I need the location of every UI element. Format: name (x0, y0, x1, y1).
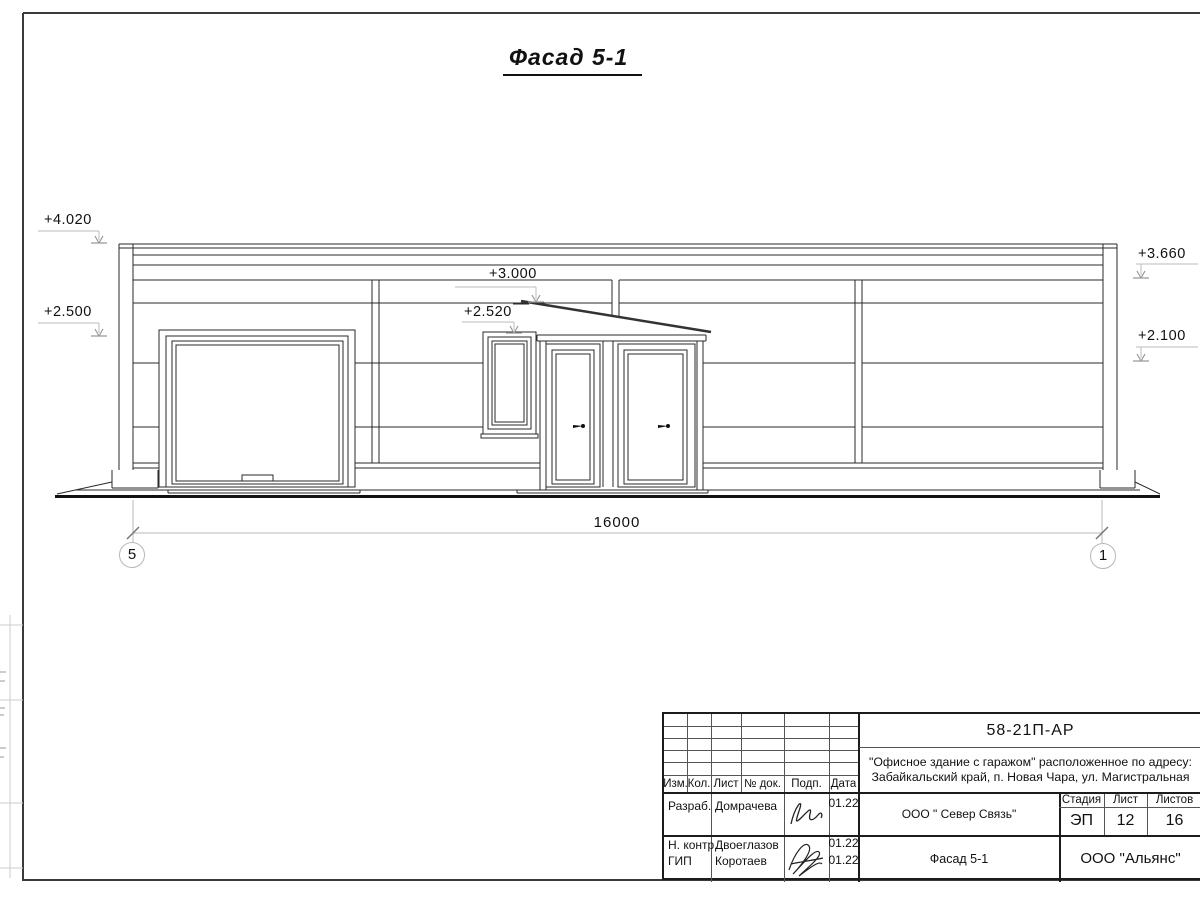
canopy-fascia (537, 335, 706, 341)
title-block: Изм. Кол. Лист № док. Подп. Дата Разраб.… (662, 712, 1200, 880)
tb-project-line1: "Офисное здание с гаражом" расположенное… (869, 755, 1192, 770)
window (481, 332, 538, 438)
tb-row-line (664, 762, 858, 763)
tb-stage-value: ЭП (1059, 807, 1104, 835)
tb-org: ООО " Север Связь" (859, 792, 1059, 835)
tb-role-ncontrol: Н. контр. (668, 838, 718, 852)
door-left-handle (573, 424, 585, 428)
garage-door (159, 330, 355, 487)
tb-stage-label: Стадия (1059, 792, 1104, 807)
tb-col-doc: № док. (741, 775, 784, 792)
tb-col-list: Лист (711, 775, 741, 792)
tb-project-line2: Забайкальский край, п. Новая Чара, ул. М… (871, 770, 1189, 785)
tb-sheet-title: Фасад 5-1 (859, 835, 1059, 882)
garage-door-handle (242, 475, 273, 481)
tb-row-line (664, 726, 858, 727)
elevation-mark-3660: +3.660 (1138, 246, 1186, 262)
tb-date-ncontrol: 01.22 (829, 835, 858, 851)
plinth-and-ramps (57, 470, 1160, 494)
tb-doc-number: 58-21П-АР (859, 714, 1200, 747)
drawing-sheet: { "sheet": { "title": "Фасад 5-1" }, "ma… (0, 0, 1200, 900)
tb-col-data: Дата (829, 775, 858, 792)
tb-sheets-label: Листов (1147, 792, 1200, 807)
tb-name-gip: Коротаев (715, 854, 767, 868)
tb-col-kol: Кол. (687, 775, 711, 792)
tb-project-name: "Офисное здание с гаражом" расположенное… (859, 747, 1200, 792)
overall-dimension: 16000 (594, 514, 641, 531)
tb-company: ООО "Альянс" (1059, 835, 1200, 882)
door-left (546, 344, 600, 487)
axis-number-left: 5 (119, 546, 145, 563)
tb-role-developer: Разраб. (668, 799, 711, 813)
tb-name-ncontrol: Двоеглазов (715, 838, 779, 852)
tb-row-line (664, 750, 858, 751)
elevation-mark-3000: +3.000 (489, 266, 537, 282)
drawing-title: Фасад 5-1 (503, 44, 642, 76)
elevation-mark-2520: +2.520 (464, 304, 512, 320)
tb-date-gip: 01.22 (829, 852, 858, 868)
dimension-lines (120, 500, 1116, 569)
tb-date-developer: 01.22 (829, 794, 858, 812)
tb-sheet-number: 12 (1104, 807, 1147, 835)
tb-row-line (664, 738, 858, 739)
tb-col-podp: Подп. (784, 775, 829, 792)
tb-role-gip: ГИП (668, 854, 692, 868)
door-right (618, 344, 695, 487)
signature-developer (785, 794, 828, 834)
tb-sheet-label: Лист (1104, 792, 1147, 807)
tb-col-izm: Изм. (664, 775, 687, 792)
portal-posts (540, 341, 703, 490)
signature-gip (785, 836, 828, 880)
window-sill (481, 434, 538, 438)
canopy-slope (521, 301, 711, 332)
door-right-handle (658, 424, 670, 428)
elevation-mark-4020: +4.020 (44, 212, 92, 228)
elevation-mark-2100: +2.100 (1138, 328, 1186, 344)
elevation-mark-2500: +2.500 (44, 304, 92, 320)
tb-sheets-total: 16 (1147, 807, 1200, 835)
tb-name-developer: Домрачева (715, 799, 777, 813)
margin-stamp-fragment (0, 615, 23, 878)
axis-number-right: 1 (1090, 547, 1116, 564)
